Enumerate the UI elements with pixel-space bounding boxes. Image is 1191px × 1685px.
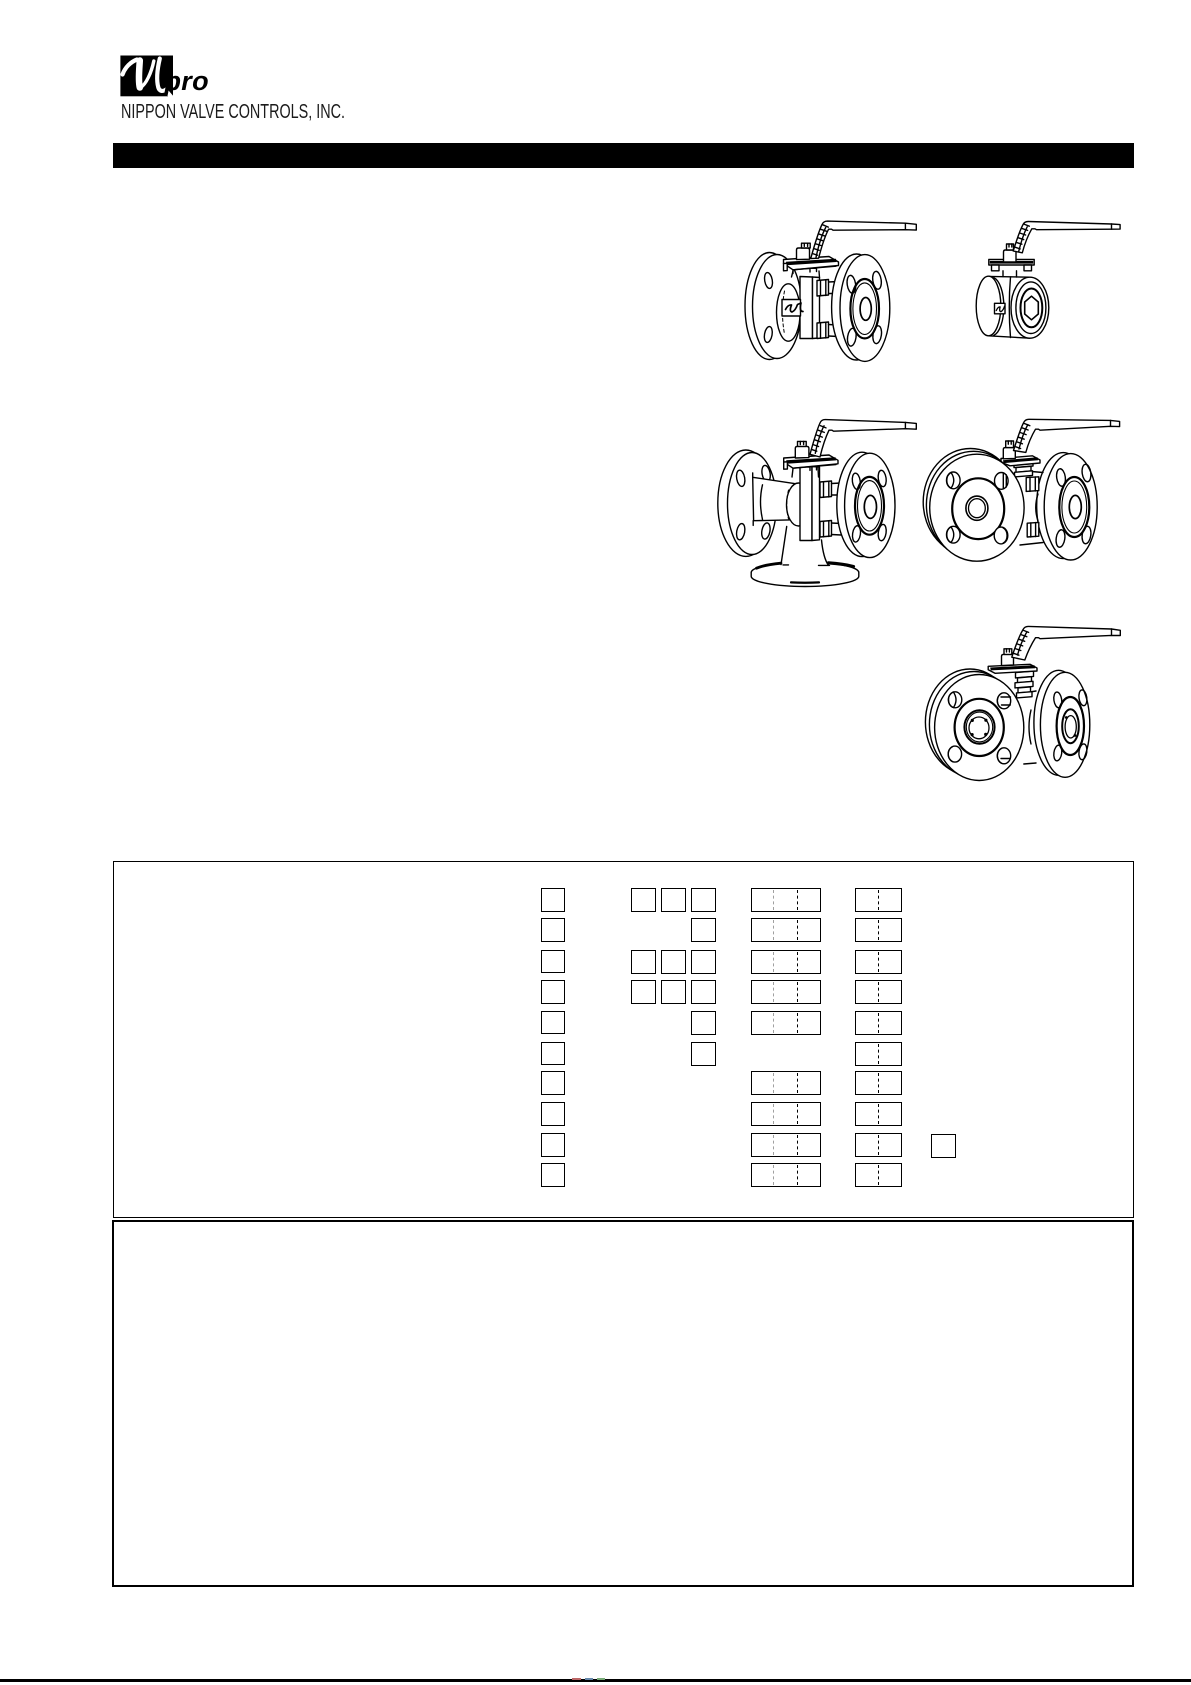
svg-text:pro: pro	[164, 66, 209, 96]
